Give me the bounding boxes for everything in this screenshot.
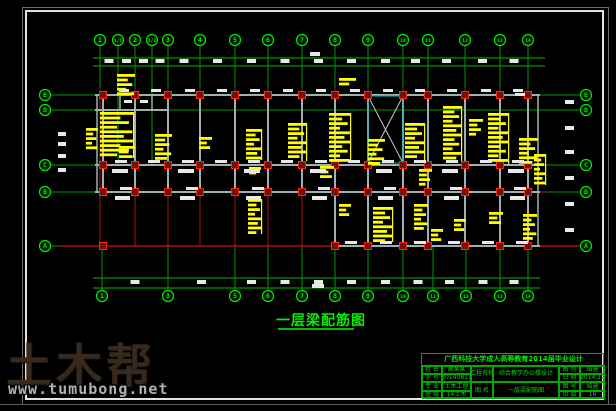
svg-text:14: 14: [525, 38, 531, 44]
tb-number-value: 结施: [580, 382, 605, 391]
svg-text:E: E: [584, 91, 588, 99]
svg-text:4: 4: [198, 36, 202, 44]
svg-text:1: 1: [100, 292, 104, 300]
svg-text:7: 7: [300, 292, 304, 300]
svg-text:9: 9: [366, 36, 370, 44]
svg-text:8: 8: [333, 36, 337, 44]
svg-text:10: 10: [400, 38, 406, 44]
tb-category-value: 结施: [580, 366, 605, 374]
svg-text:12: 12: [463, 294, 469, 300]
tb-class-value: 14土木: [442, 391, 471, 399]
drawing-title: 一层梁配筋图: [276, 310, 366, 330]
svg-text:11: 11: [430, 294, 436, 300]
svg-text:5: 5: [233, 36, 237, 44]
svg-text:1/1: 1/1: [114, 38, 122, 44]
svg-text:9: 9: [366, 292, 370, 300]
svg-text:A: A: [584, 242, 588, 250]
grid-lines: [51, 46, 586, 291]
watermark-url-text: www.tumubong.net: [8, 380, 169, 398]
svg-text:5: 5: [233, 292, 237, 300]
svg-text:1: 1: [98, 36, 102, 44]
svg-text:2: 2: [133, 36, 137, 44]
tb-id-label: 学 号: [422, 374, 442, 382]
tb-project-value: 综合教学办公楼设计: [493, 366, 559, 382]
tb-major-label: 专 业: [422, 382, 442, 391]
tb-class-label: 班 级: [422, 391, 442, 399]
svg-text:C: C: [43, 161, 47, 169]
tb-id-value: 20140811: [442, 374, 471, 382]
tb-category-label: 图 别: [559, 366, 580, 374]
svg-text:14: 14: [525, 294, 531, 300]
svg-text:D: D: [584, 106, 588, 114]
svg-text:3: 3: [166, 292, 170, 300]
svg-text:D: D: [43, 106, 47, 114]
tb-pages-value: 16: [580, 391, 605, 399]
svg-text:A: A: [43, 242, 47, 250]
svg-text:8: 8: [333, 292, 337, 300]
tb-pages-label: 页 数: [559, 391, 580, 399]
rebar-annotations: [86, 74, 546, 242]
tb-major-value: 土木工程: [442, 382, 471, 391]
svg-text:E: E: [43, 91, 47, 99]
svg-text:B: B: [43, 188, 47, 196]
tb-date-label: 日 期: [559, 374, 580, 382]
svg-text:6: 6: [266, 292, 270, 300]
tb-name-value: 黄某某: [442, 366, 471, 374]
title-block-header: 广西科技大学成人高等教育2014届毕业设计: [422, 354, 605, 366]
cad-screenshot: 11/121/234567891011121314135678910111213…: [0, 0, 616, 411]
svg-text:12: 12: [462, 38, 468, 44]
svg-text:3: 3: [166, 36, 170, 44]
tb-sheetname-value: 一层梁配筋图: [493, 382, 559, 399]
title-block: 广西科技大学成人高等教育2014届毕业设计 姓 名 黄某某 学 号 201408…: [421, 353, 604, 398]
svg-text:13: 13: [497, 294, 503, 300]
tb-date-value: 2014.11: [580, 374, 605, 382]
svg-text:13: 13: [497, 38, 503, 44]
svg-text:11: 11: [425, 38, 431, 44]
svg-text:6: 6: [266, 36, 270, 44]
tb-sheetname-label: 图 名: [471, 382, 493, 399]
tb-project-label: 工程名称: [471, 366, 493, 382]
tb-name-label: 姓 名: [422, 366, 442, 374]
tb-number-label: 图 号: [559, 382, 580, 391]
svg-text:10: 10: [400, 294, 406, 300]
svg-text:7: 7: [300, 36, 304, 44]
drawing-title-underline: [278, 328, 354, 330]
svg-text:1/2: 1/2: [148, 38, 156, 44]
svg-text:B: B: [584, 188, 588, 196]
svg-text:C: C: [584, 161, 588, 169]
